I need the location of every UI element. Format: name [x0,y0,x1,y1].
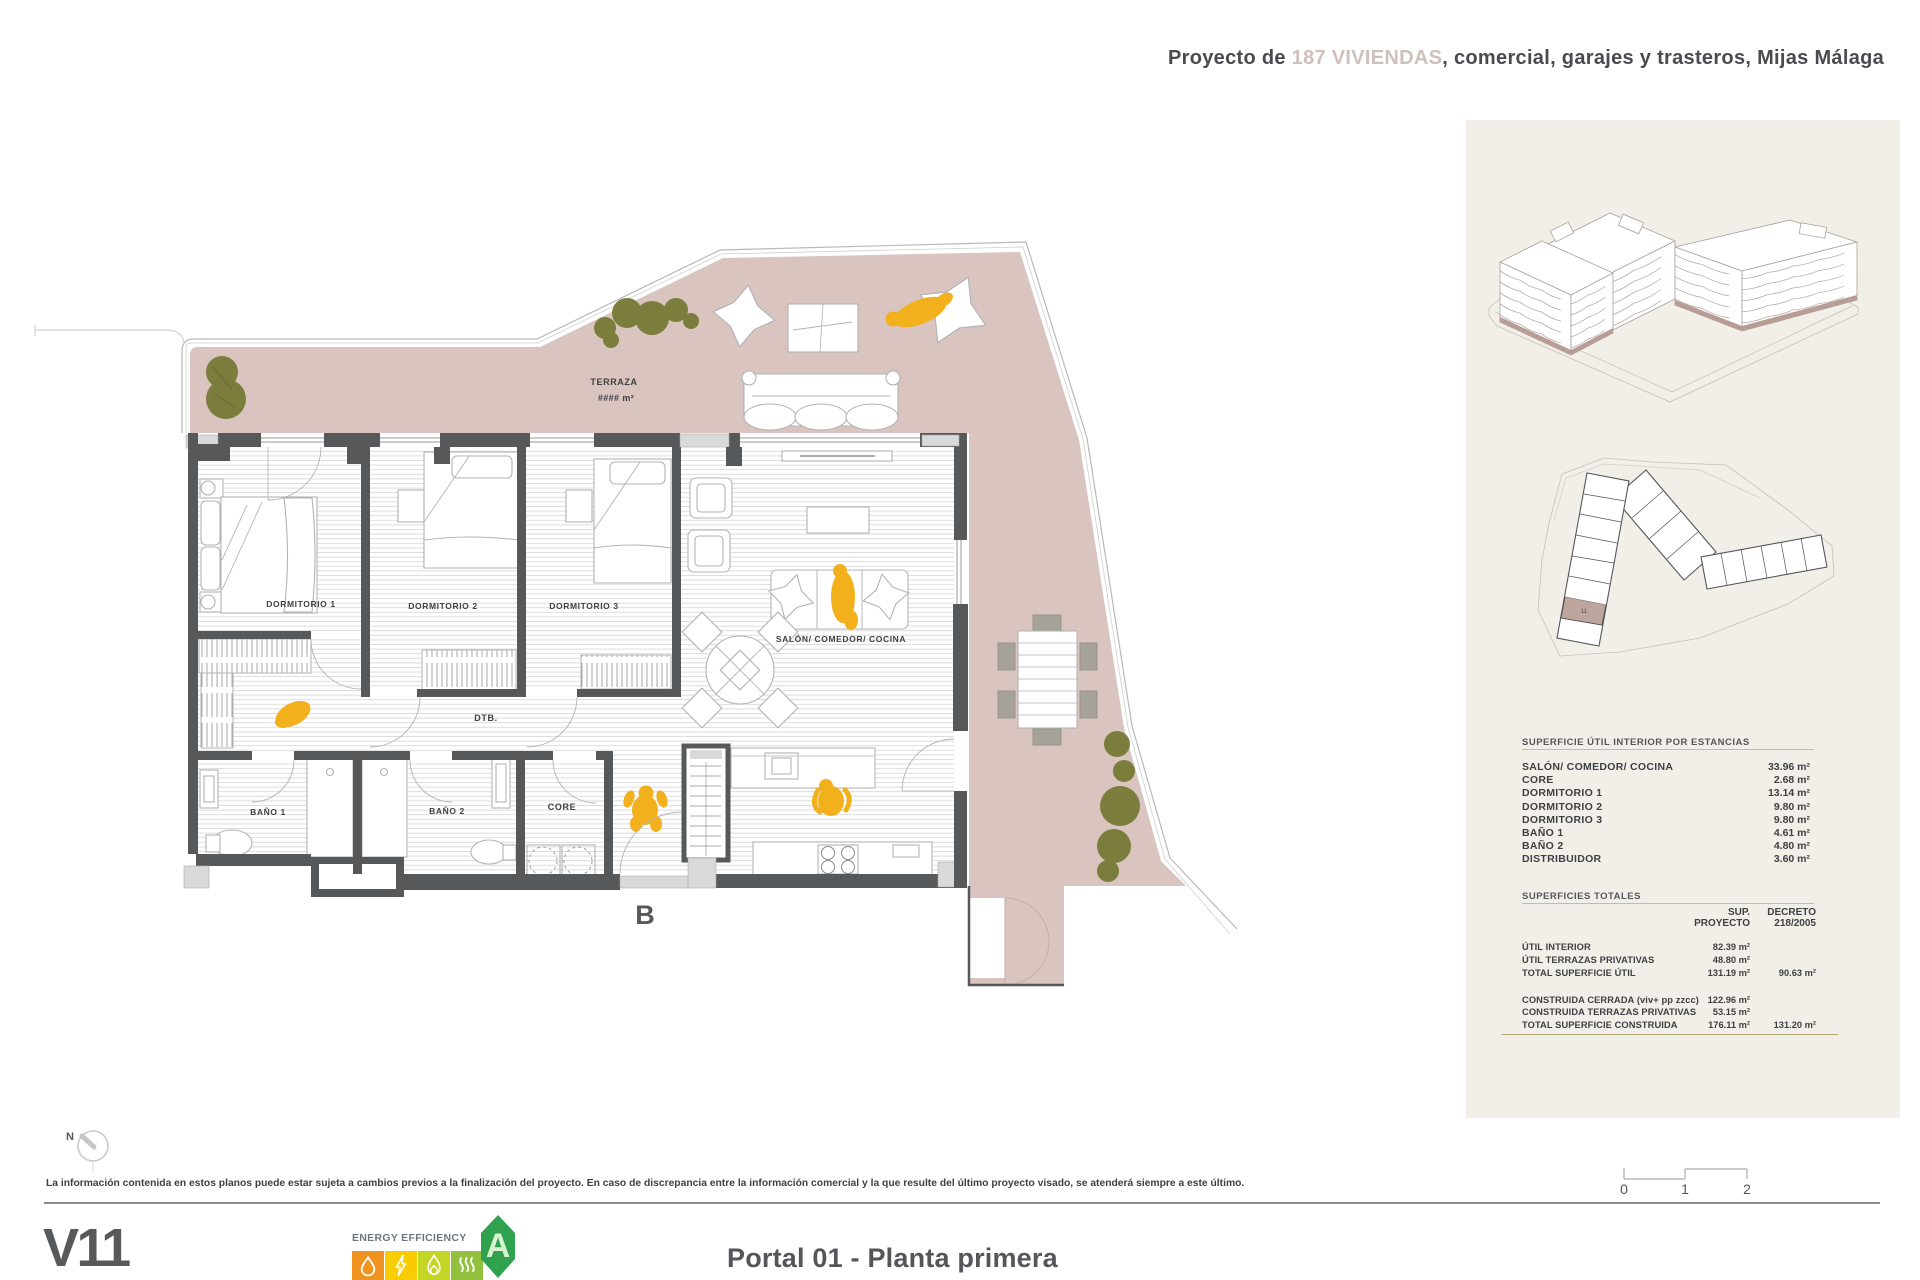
svg-text:N: N [66,1131,74,1143]
svg-text:CORE: CORE [548,802,576,812]
svg-text:TERRAZA: TERRAZA [590,377,637,387]
svg-text:1: 1 [1681,1181,1689,1197]
svg-text:2: 2 [1743,1181,1751,1197]
svg-text:BAÑO 2: BAÑO 2 [429,806,465,816]
svg-text:DORMITORIO 2: DORMITORIO 2 [408,601,477,611]
svg-text:SALÓN/ COMEDOR/ COCINA: SALÓN/ COMEDOR/ COCINA [776,633,906,644]
svg-text:DTB.: DTB. [474,713,497,723]
svg-text:#### m²: #### m² [598,393,634,403]
svg-text:11: 11 [1581,609,1588,615]
svg-text:DORMITORIO 3: DORMITORIO 3 [549,601,618,611]
svg-text:A: A [486,1227,511,1265]
svg-text:0: 0 [1620,1181,1628,1197]
svg-text:B: B [635,900,655,930]
svg-text:DORMITORIO 1: DORMITORIO 1 [266,599,335,609]
svg-text:BAÑO 1: BAÑO 1 [250,807,286,817]
